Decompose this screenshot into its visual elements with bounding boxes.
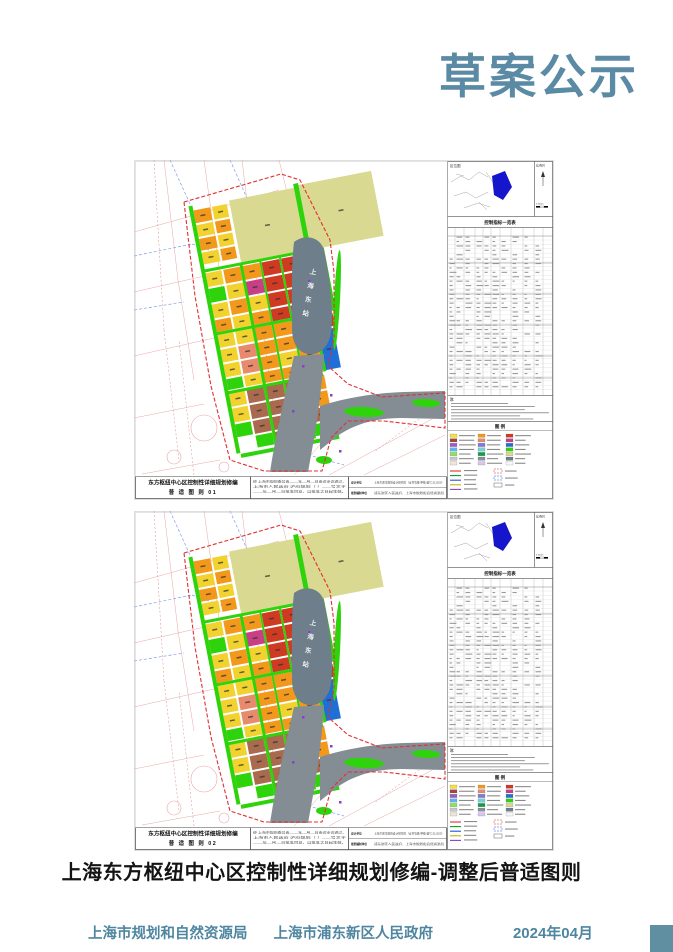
footer: 上海市规划和自然资源局上海市浦东新区人民政府 2024年04月 <box>0 912 673 952</box>
legend-swatch <box>450 794 457 797</box>
svg-text:上海市城市规划设计研究院（证书等级:甲级 编号:211020: 上海市城市规划设计研究院（证书等级:甲级 编号:211020） <box>374 481 444 485</box>
caption: 上海东方枢纽中心区控制性详细规划修编-调整后普适图则 <box>30 856 613 885</box>
legend-swatch <box>478 443 485 446</box>
svg-text:经 上海市规划委员会____年__月__日会议审议通过，: 经 上海市规划委员会____年__月__日会议审议通过， <box>253 831 346 835</box>
legend-swatch <box>478 434 485 437</box>
svg-text:比例尺: 比例尺 <box>536 163 545 168</box>
legend-swatch <box>506 799 513 802</box>
agency-left: 上海市规划和自然资源局 <box>88 926 248 942</box>
legend-swatch <box>478 462 485 465</box>
svg-text:图 例: 图 例 <box>495 774 506 781</box>
legend-swatch <box>506 443 513 446</box>
legend-swatch <box>478 813 485 816</box>
svg-text:注:: 注: <box>450 397 454 402</box>
metro-mark <box>330 394 333 397</box>
svg-text:上海市人民政府 沪府规划〔 〕___号文于: 上海市人民政府 沪府规划〔 〕___号文于 <box>253 836 347 840</box>
svg-text:控制指标一览表: 控制指标一览表 <box>484 570 516 577</box>
legend-swatch <box>478 457 485 460</box>
page-title: 草案公示 <box>439 38 639 107</box>
zoning-map-sheet-02: 上海东站区位图比例尺0 200m控制指标一览表注:图 例东方枢纽中心区控制性详细… <box>134 511 554 851</box>
metro-mark <box>339 801 342 804</box>
svg-text:东方枢纽中心区控制性详细规划修编: 东方枢纽中心区控制性详细规划修编 <box>148 479 238 487</box>
title-block: 东方枢纽中心区控制性详细规划修编普 适 图 则 02经 上海市规划委员会____… <box>136 828 447 850</box>
legend-swatch <box>450 785 457 788</box>
legend-swatch <box>506 457 513 460</box>
legend-swatch <box>506 434 513 437</box>
metro-mark <box>302 365 305 368</box>
legend-swatch <box>478 799 485 802</box>
legend-swatch <box>450 448 457 451</box>
legend-swatch <box>450 457 457 460</box>
legend-swatch <box>506 462 513 465</box>
svg-text:区位图: 区位图 <box>450 163 461 168</box>
legend-swatch <box>450 452 457 455</box>
notes-block: 注: <box>448 747 553 773</box>
legend-swatch <box>450 799 457 802</box>
svg-text:注:: 注: <box>450 748 454 753</box>
metro-mark <box>292 761 295 764</box>
plan-sheet-02: 上海东站区位图比例尺0 200m控制指标一览表注:图 例东方枢纽中心区控制性详细… <box>134 511 554 851</box>
svg-text:____年__月__日批准同意，自批准之日起生效。: ____年__月__日批准同意，自批准之日起生效。 <box>251 490 346 494</box>
svg-text:普 适 图 则 01: 普 适 图 则 01 <box>169 488 218 496</box>
metro-mark <box>292 410 295 413</box>
legend-swatch <box>506 794 513 797</box>
legend-swatch <box>506 813 513 816</box>
legend-swatch <box>506 785 513 788</box>
svg-text:____年__月__日批准同意，自批准之日起生效。: ____年__月__日批准同意，自批准之日起生效。 <box>251 841 346 845</box>
legend-swatch <box>506 448 513 451</box>
svg-text:上海市人民政府 沪府规划〔 〕___号文于: 上海市人民政府 沪府规划〔 〕___号文于 <box>253 485 347 489</box>
svg-text:普 适 图 则 02: 普 适 图 则 02 <box>169 839 218 847</box>
svg-text:0 200m: 0 200m <box>536 555 543 557</box>
legend-swatch <box>450 808 457 811</box>
indicator-table: 控制指标一览表 <box>448 568 553 747</box>
svg-text:控制指标一览表: 控制指标一览表 <box>484 219 516 226</box>
legend-swatch <box>506 790 513 793</box>
plan-sheet-01: 上海东站区位图比例尺0 200m控制指标一览表注:图 例东方枢纽中心区控制性详细… <box>134 160 554 500</box>
legend-swatch <box>506 452 513 455</box>
svg-text:规划编制单位: 规划编制单位 <box>350 491 367 495</box>
legend: 图 例 <box>448 773 553 850</box>
legend-swatch <box>478 808 485 811</box>
svg-text:区位图: 区位图 <box>450 514 461 519</box>
svg-text:浦东新区人民政府、上海市规划和自然资源局: 浦东新区人民政府、上海市规划和自然资源局 <box>374 842 445 846</box>
legend-swatch <box>450 439 457 442</box>
svg-text:图 例: 图 例 <box>495 423 506 430</box>
locator-map: 区位图 <box>448 162 535 217</box>
indicator-table: 控制指标一览表 <box>448 217 553 396</box>
title-block: 东方枢纽中心区控制性详细规划修编普 适 图 则 01经 上海市规划委员会____… <box>136 477 447 499</box>
legend-swatch <box>450 443 457 446</box>
legend-swatch <box>478 794 485 797</box>
svg-text:设计单位: 设计单位 <box>351 481 362 485</box>
info-panel: 区位图比例尺0 200m控制指标一览表注:图 例 <box>448 513 553 850</box>
legend-swatch <box>478 448 485 451</box>
notice-page: 草案公示 上海东站区位图比例尺0 200m控制指标一览表注:图 例东方枢纽中心区… <box>0 0 673 952</box>
svg-text:比例尺: 比例尺 <box>536 514 545 519</box>
legend-swatch <box>506 803 513 806</box>
legend: 图 例 <box>448 422 553 499</box>
legend-swatch <box>450 462 457 465</box>
svg-text:上海市城市规划设计研究院（证书等级:甲级 编号:211020: 上海市城市规划设计研究院（证书等级:甲级 编号:211020） <box>374 832 444 836</box>
legend-swatch <box>450 434 457 437</box>
legend-swatch <box>478 790 485 793</box>
svg-text:浦东新区人民政府、上海市规划和自然资源局: 浦东新区人民政府、上海市规划和自然资源局 <box>374 491 445 495</box>
agency-names: 上海市规划和自然资源局上海市浦东新区人民政府 <box>88 922 459 943</box>
agency-right: 上海市浦东新区人民政府 <box>274 926 434 942</box>
publish-date: 2024年04月 <box>513 922 593 943</box>
legend-swatch <box>478 785 485 788</box>
info-panel: 区位图比例尺0 200m控制指标一览表注:图 例 <box>448 162 553 499</box>
notes-block: 注: <box>448 396 553 422</box>
svg-text:0 200m: 0 200m <box>536 204 543 206</box>
metro-mark <box>302 716 305 719</box>
legend-swatch <box>450 813 457 816</box>
scale-box: 比例尺0 200m <box>535 513 553 568</box>
svg-text:东方枢纽中心区控制性详细规划修编: 东方枢纽中心区控制性详细规划修编 <box>148 830 238 838</box>
metro-mark <box>339 450 342 453</box>
svg-text:设计单位: 设计单位 <box>351 832 362 836</box>
locator-map: 区位图 <box>448 513 535 568</box>
legend-swatch <box>478 452 485 455</box>
legend-swatch <box>450 790 457 793</box>
legend-swatch <box>478 439 485 442</box>
scale-box: 比例尺0 200m <box>535 162 553 217</box>
legend-swatch <box>450 803 457 806</box>
corner-accent-square <box>650 925 673 952</box>
legend-swatch <box>506 808 513 811</box>
legend-swatch <box>478 803 485 806</box>
svg-text:规划编制单位: 规划编制单位 <box>350 842 367 846</box>
legend-swatch <box>506 439 513 442</box>
svg-text:经 上海市规划委员会____年__月__日会议审议通过，: 经 上海市规划委员会____年__月__日会议审议通过， <box>253 480 346 484</box>
zoning-map-sheet-01: 上海东站区位图比例尺0 200m控制指标一览表注:图 例东方枢纽中心区控制性详细… <box>134 160 554 500</box>
metro-mark <box>330 745 333 748</box>
